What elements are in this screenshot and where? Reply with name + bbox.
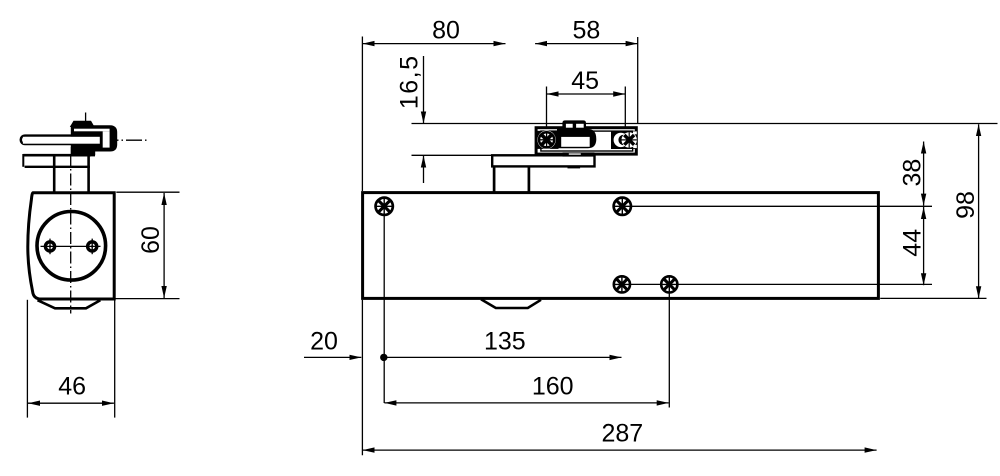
- svg-text:46: 46: [58, 373, 86, 401]
- svg-text:60: 60: [137, 226, 165, 254]
- svg-text:98: 98: [952, 191, 980, 219]
- svg-text:20: 20: [310, 327, 338, 355]
- svg-text:38: 38: [899, 159, 927, 187]
- svg-text:44: 44: [899, 229, 927, 257]
- svg-text:80: 80: [432, 17, 460, 45]
- svg-text:16,5: 16,5: [396, 54, 424, 109]
- svg-text:287: 287: [601, 419, 643, 447]
- svg-text:58: 58: [572, 17, 600, 45]
- svg-text:160: 160: [532, 372, 574, 400]
- svg-text:135: 135: [484, 328, 526, 356]
- svg-text:45: 45: [571, 67, 599, 95]
